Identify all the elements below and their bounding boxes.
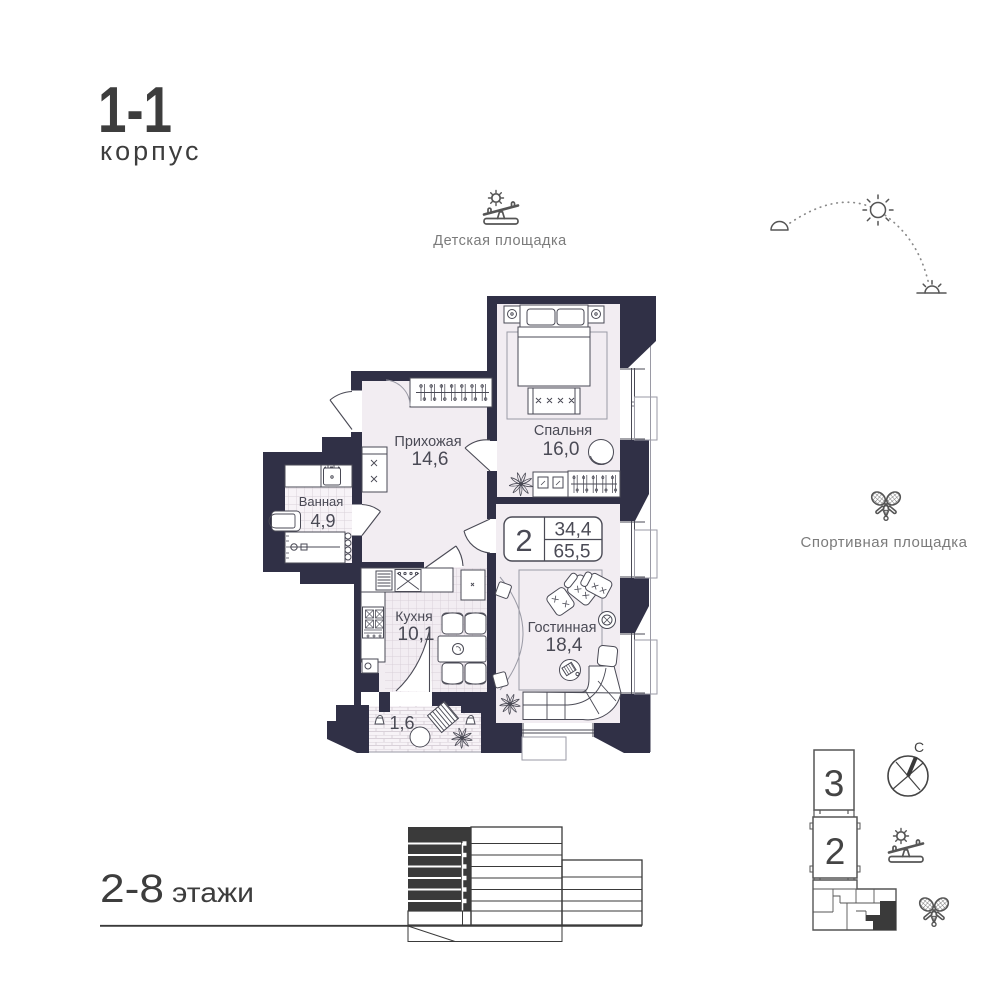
svg-text:65,5: 65,5 [554,542,591,563]
svg-text:4,9: 4,9 [310,511,335,531]
svg-text:Гостинная: Гостинная [528,620,597,636]
svg-text:34,4: 34,4 [555,520,592,541]
svg-text:Ванная: Ванная [299,494,344,509]
svg-text:2-8: 2-8 [100,867,164,911]
svg-text:Спортивная площадка: Спортивная площадка [801,534,968,551]
svg-text:Кухня: Кухня [395,608,432,624]
svg-text:2: 2 [515,523,532,558]
svg-text:18,4: 18,4 [546,635,583,656]
svg-text:2: 2 [825,831,846,872]
svg-text:Детская площадка: Детская площадка [433,233,567,249]
svg-text:16,0: 16,0 [543,439,580,460]
svg-text:Спальня: Спальня [534,423,592,439]
svg-text:1,6: 1,6 [389,713,414,733]
svg-text:Прихожая: Прихожая [394,434,461,450]
svg-text:С: С [914,739,924,755]
svg-text:10,1: 10,1 [398,624,435,645]
svg-text:14,6: 14,6 [412,449,449,470]
svg-text:корпус: корпус [100,136,201,166]
svg-text:этажи: этажи [172,877,254,908]
svg-text:3: 3 [824,763,845,804]
